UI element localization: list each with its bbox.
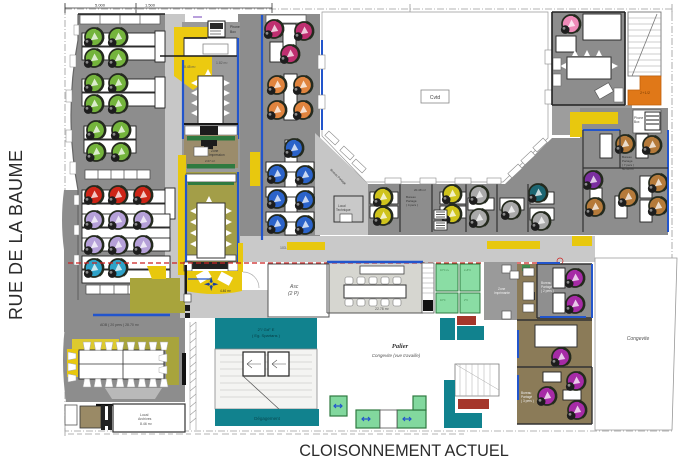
- svg-text:2+6°C: 2+6°C: [464, 269, 471, 272]
- svg-text:Box: Box: [634, 120, 640, 124]
- svg-text:1.82 m²: 1.82 m²: [216, 61, 228, 65]
- svg-text:10°C 2+: 10°C 2+: [440, 269, 450, 272]
- svg-text:(2 P): (2 P): [288, 291, 299, 297]
- svg-text:( 2 pers ): ( 2 pers ): [541, 289, 554, 293]
- svg-text:Dégagement: Dégagement: [254, 416, 281, 421]
- svg-text:Congevite: Congevite: [627, 336, 650, 342]
- svg-text:2+1/2: 2+1/2: [640, 90, 651, 95]
- svg-text:4.46 m²: 4.46 m²: [220, 289, 231, 293]
- svg-text:Technique: Technique: [336, 208, 351, 212]
- svg-text:Imprimante: Imprimante: [494, 291, 510, 295]
- svg-text:10°C: 10°C: [440, 299, 446, 302]
- svg-text:( 3 pers ): ( 3 pers ): [521, 399, 534, 403]
- svg-text:2°C: 2°C: [464, 299, 468, 302]
- svg-text:Palier: Palier: [392, 343, 409, 350]
- svg-text:Congevite (vue travaille): Congevite (vue travaille): [372, 353, 421, 358]
- svg-text:Impression: Impression: [209, 153, 225, 157]
- svg-text:1.500: 1.500: [145, 3, 156, 8]
- svg-text:Asc: Asc: [289, 284, 299, 290]
- svg-text:8.46 m²: 8.46 m²: [140, 422, 153, 426]
- svg-text:22.78 m²: 22.78 m²: [375, 307, 390, 311]
- svg-text:Phone: Phone: [230, 25, 240, 29]
- svg-text:2°/ Gd° E: 2°/ Gd° E: [258, 327, 275, 332]
- svg-text:2.07 m²: 2.07 m²: [205, 159, 215, 163]
- svg-text:ADB ( 20 pers ) 28.70 m²: ADB ( 20 pers ) 28.70 m²: [100, 323, 140, 327]
- svg-text:Cvtd: Cvtd: [430, 95, 441, 101]
- svg-text:RUE DE LA BAUME: RUE DE LA BAUME: [6, 149, 26, 320]
- svg-text:5.000: 5.000: [95, 3, 106, 8]
- svg-text:8.45 m²: 8.45 m²: [184, 65, 196, 69]
- svg-text:CLOISONNEMENT ACTUEL: CLOISONNEMENT ACTUEL: [299, 442, 509, 460]
- svg-text:( Eg. Spartans ): ( Eg. Spartans ): [252, 333, 281, 338]
- svg-text:Archives: Archives: [138, 417, 152, 421]
- svg-text:Box: Box: [230, 30, 236, 34]
- svg-text:( 4 pers ): ( 4 pers ): [406, 203, 418, 207]
- svg-text:20.48 m²: 20.48 m²: [414, 188, 426, 192]
